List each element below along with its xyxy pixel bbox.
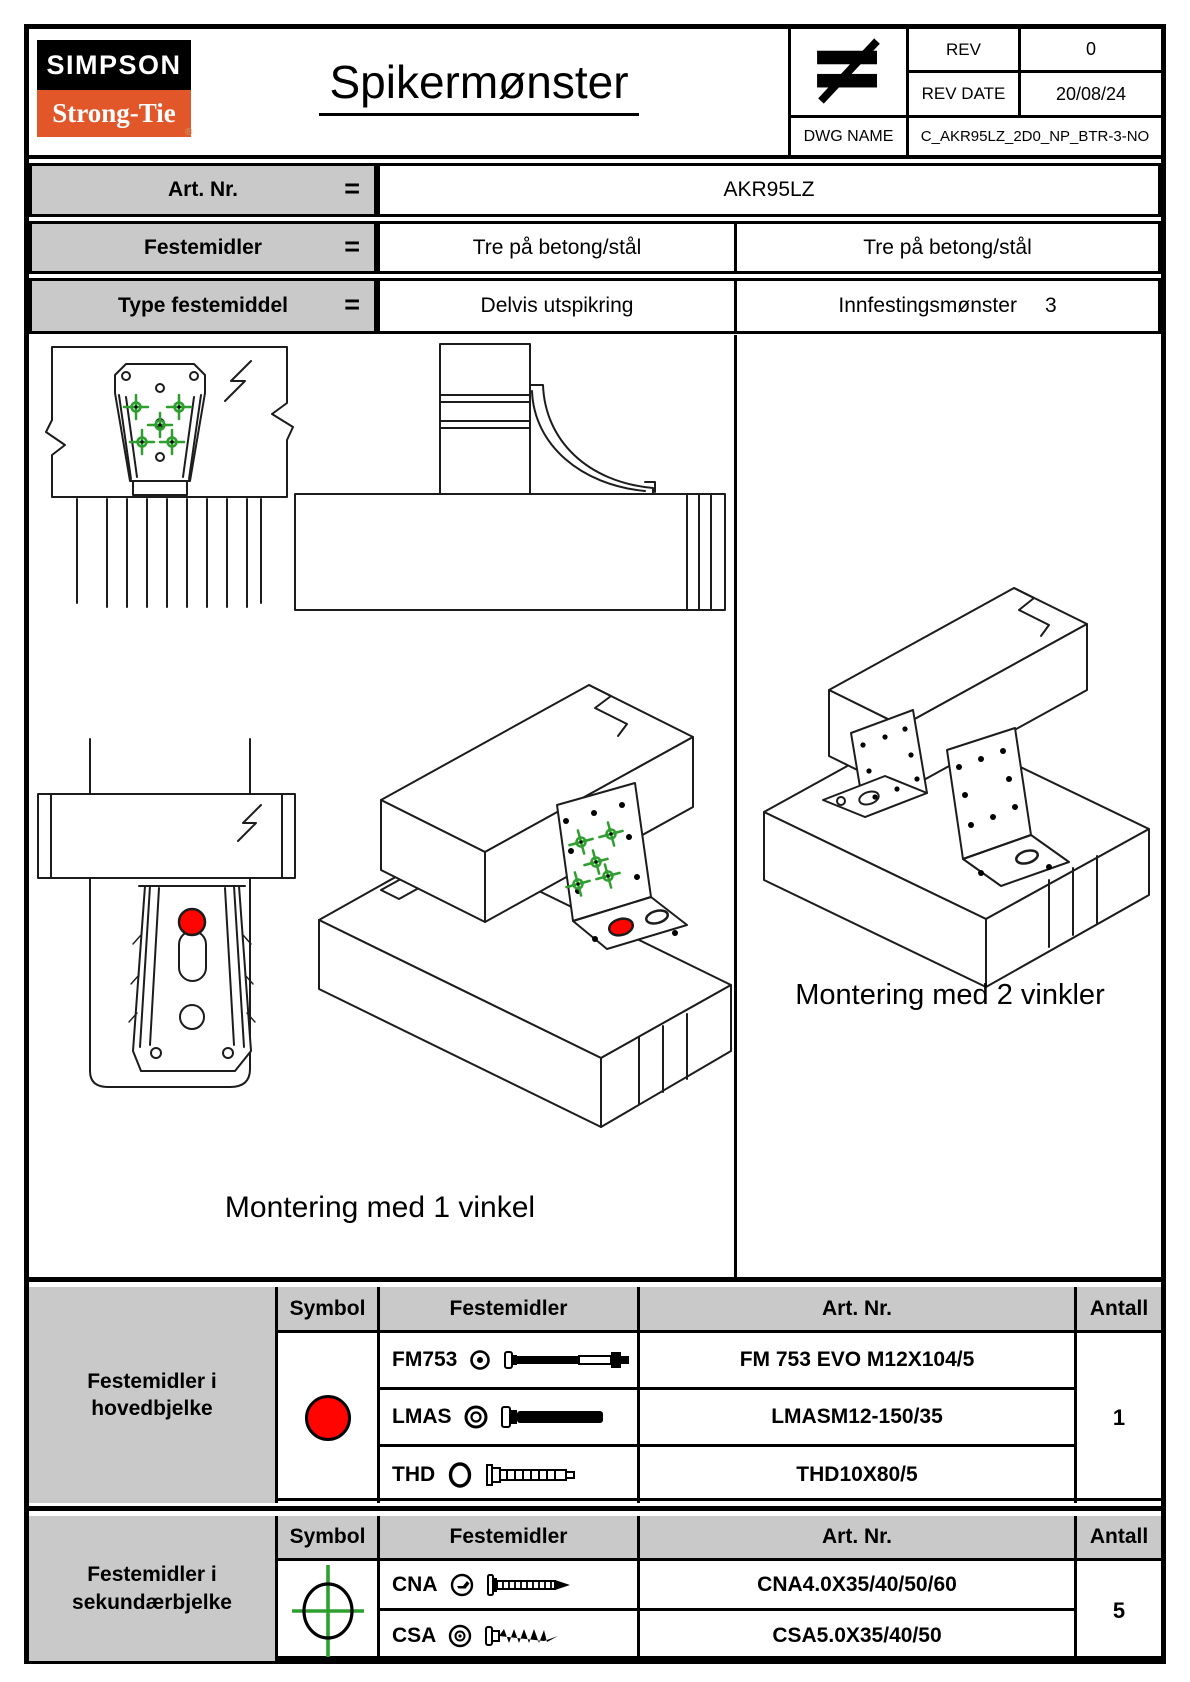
drawing-divider <box>734 335 737 1277</box>
spec-label: Art. Nr. = <box>29 163 377 217</box>
art-nr-cell: CSA5.0X35/40/50 <box>640 1611 1077 1661</box>
csa-head-icon <box>446 1622 474 1650</box>
header-symbol: Symbol <box>278 1287 380 1333</box>
header-antall: Antall <box>1077 1287 1161 1333</box>
header-art-nr: Art. Nr. <box>640 1287 1077 1333</box>
logo-simpson: SIMPSON <box>37 40 191 90</box>
spec-row-art-nr: Art. Nr. = AKR95LZ <box>29 163 1161 217</box>
simpson-strongtie-logo: SIMPSON Strong-Tie <box>37 40 191 137</box>
equals-sign: = <box>344 231 360 262</box>
header-art-nr: Art. Nr. <box>640 1516 1077 1561</box>
fm753-washer-icon <box>467 1347 493 1373</box>
logo-strongtie: Strong-Tie <box>37 90 191 137</box>
page-title: Spikermønster <box>199 55 759 116</box>
rev-date-value: 20/08/24 <box>1021 73 1161 118</box>
innfestingsmonster-label: Innfestingsmønster <box>838 294 1017 318</box>
caption-single-bracket: Montering med 1 vinkel <box>80 1191 680 1225</box>
fastener-table-hovedbjelke: Festemidler i hovedbjelke Symbol Festemi… <box>29 1277 1161 1501</box>
spec-label-text: Festemidler <box>144 236 262 260</box>
fastener-cell-fm753: FM753 <box>380 1333 640 1390</box>
dwg-name-value: C_AKR95LZ_2D0_NP_BTR-3-NO <box>909 118 1161 155</box>
technical-drawings <box>29 335 1161 1277</box>
caption-double-bracket: Montering med 2 vinkler <box>747 979 1153 1012</box>
innfestingsmonster-number: 3 <box>1045 294 1057 318</box>
front-view-drawing <box>38 739 295 1087</box>
spec-value-left: Tre på betong/stål <box>377 221 737 274</box>
spec-row-type-festemiddel: Type festemiddel = Delvis utspikring Inn… <box>29 278 1161 334</box>
rev-date-label: REV DATE <box>909 73 1021 118</box>
rev-label: REV <box>909 29 1021 73</box>
thd-screw-icon <box>485 1461 603 1489</box>
dwg-name-label: DWG NAME <box>788 118 909 155</box>
csa-screw-icon <box>484 1623 596 1649</box>
fastener-cell-csa: CSA <box>380 1611 640 1661</box>
art-nr-cell: CNA4.0X35/40/50/60 <box>640 1561 1077 1611</box>
header-festemidler: Festemidler <box>380 1287 640 1333</box>
group-label: Festemidler i sekundærbjelke <box>29 1516 278 1661</box>
antall-value: 5 <box>1077 1561 1161 1661</box>
symbol-cell <box>278 1333 380 1503</box>
title-block: SIMPSON Strong-Tie ® Spikermønster DWG N… <box>29 29 1161 159</box>
group-label: Festemidler i hovedbjelke <box>29 1287 278 1503</box>
fm753-bolt-icon <box>503 1347 637 1373</box>
art-nr-cell: LMASM12-150/35 <box>640 1390 1077 1447</box>
registered-mark: ® <box>185 127 192 138</box>
spec-value-right: Tre på betong/stål <box>734 221 1161 274</box>
rev-value: 0 <box>1021 29 1161 73</box>
cna-head-icon <box>448 1571 476 1599</box>
thd-ring-icon <box>445 1460 475 1490</box>
spec-label: Type festemiddel = <box>29 278 377 334</box>
spec-label-text: Art. Nr. <box>168 178 238 202</box>
equals-sign: = <box>344 289 360 320</box>
first-angle-projection-icon <box>791 30 906 114</box>
fastener-cell-thd: THD <box>380 1447 640 1503</box>
iso-double-bracket-drawing <box>764 588 1149 987</box>
fastener-table-sekundaerbjelke: Festemidler i sekundærbjelke Symbol Fest… <box>29 1506 1161 1659</box>
art-nr-cell: FM 753 EVO M12X104/5 <box>640 1333 1077 1390</box>
equals-sign: = <box>344 173 360 204</box>
lmas-bolt-icon <box>500 1403 620 1431</box>
spec-value-right: Innfestingsmønster 3 <box>734 278 1161 334</box>
header-antall: Antall <box>1077 1516 1161 1561</box>
spec-value-left: Delvis utspikring <box>377 278 737 334</box>
spec-value: AKR95LZ <box>377 163 1161 217</box>
spec-label: Festemidler = <box>29 221 377 274</box>
green-crosshair-symbol-icon <box>282 1563 374 1659</box>
projection-symbol-cell <box>788 29 909 118</box>
symbol-cell <box>278 1561 380 1661</box>
spec-row-festemidler: Festemidler = Tre på betong/stål Tre på … <box>29 221 1161 274</box>
spec-label-text: Type festemiddel <box>118 294 288 318</box>
header-festemidler: Festemidler <box>380 1516 640 1561</box>
header-symbol: Symbol <box>278 1516 380 1561</box>
antall-value: 1 <box>1077 1333 1161 1503</box>
plan-view-drawing <box>46 347 293 607</box>
red-circle-symbol-icon <box>305 1395 351 1441</box>
side-view-drawing <box>295 344 725 610</box>
drawing-sheet: SIMPSON Strong-Tie ® Spikermønster DWG N… <box>24 24 1166 1664</box>
fastener-cell-cna: CNA <box>380 1561 640 1611</box>
cna-nail-icon <box>486 1572 598 1598</box>
art-nr-cell: THD10X80/5 <box>640 1447 1077 1503</box>
red-anchor-marker <box>179 909 205 935</box>
lmas-washer-icon <box>462 1403 490 1431</box>
fastener-cell-lmas: LMAS <box>380 1390 640 1447</box>
